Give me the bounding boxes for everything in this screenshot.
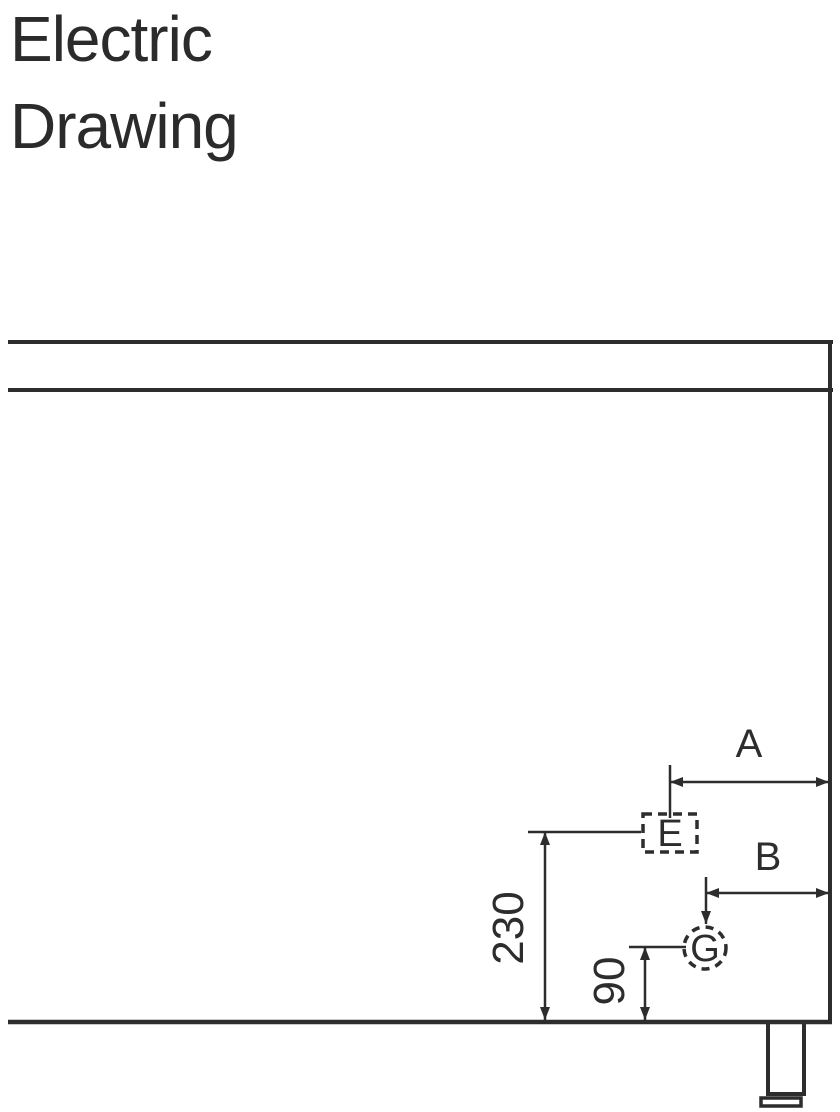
technical-drawing: A E B G 230 90 [0, 0, 840, 1112]
leg-outline [768, 1022, 804, 1094]
dimension-a-label: A [736, 722, 763, 766]
dimension-b-label: B [755, 835, 782, 879]
electric-connection-label: E [657, 813, 682, 855]
dimension-230-label: 230 [484, 891, 533, 964]
dimension-90-label: 90 [585, 957, 634, 1006]
leg-foot [761, 1098, 801, 1106]
electric-drawing-page: Electric Drawing A E B G [0, 0, 840, 1112]
gas-connection-label: G [690, 928, 720, 970]
